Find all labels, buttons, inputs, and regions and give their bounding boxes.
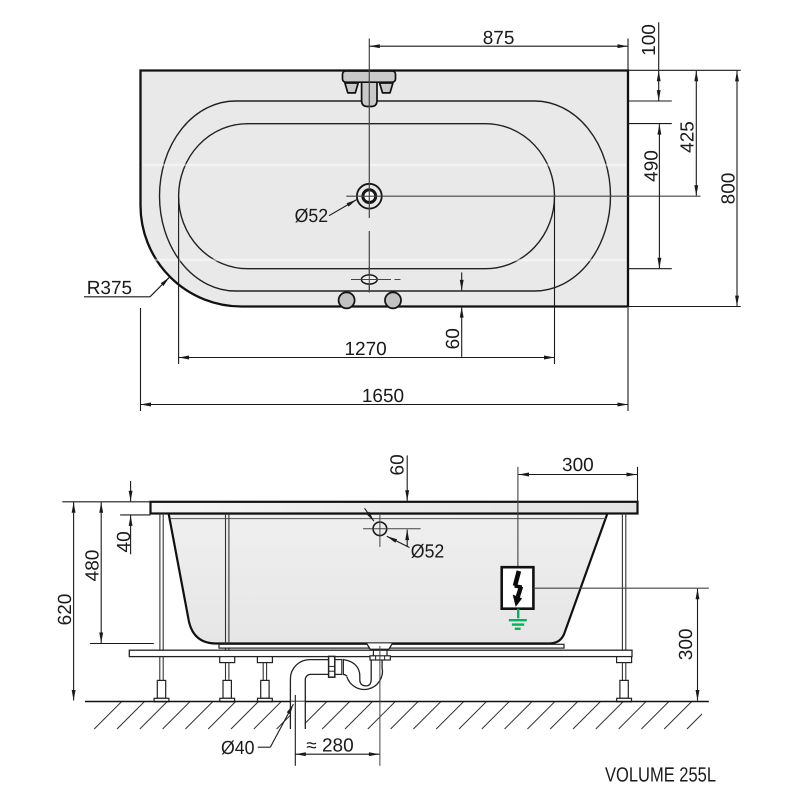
- svg-text:300: 300: [562, 455, 594, 476]
- svg-text:Ø52: Ø52: [411, 542, 445, 563]
- svg-text:1270: 1270: [344, 339, 386, 360]
- svg-text:40: 40: [114, 531, 135, 552]
- svg-text:100: 100: [639, 24, 660, 56]
- svg-text:480: 480: [83, 550, 104, 582]
- svg-text:800: 800: [718, 173, 739, 205]
- svg-text:490: 490: [642, 150, 663, 182]
- svg-text:60: 60: [443, 328, 464, 349]
- svg-text:Ø40: Ø40: [221, 738, 255, 759]
- svg-text:300: 300: [676, 629, 697, 661]
- svg-text:R375: R375: [87, 278, 132, 299]
- svg-text:60: 60: [388, 454, 409, 475]
- svg-text:Ø52: Ø52: [295, 206, 329, 227]
- svg-text:875: 875: [483, 28, 515, 49]
- svg-text:1650: 1650: [362, 386, 404, 407]
- svg-text:VOLUME 255L: VOLUME 255L: [605, 763, 716, 786]
- svg-text:≈ 280: ≈ 280: [306, 735, 353, 756]
- svg-text:425: 425: [677, 121, 698, 153]
- svg-text:620: 620: [55, 594, 76, 626]
